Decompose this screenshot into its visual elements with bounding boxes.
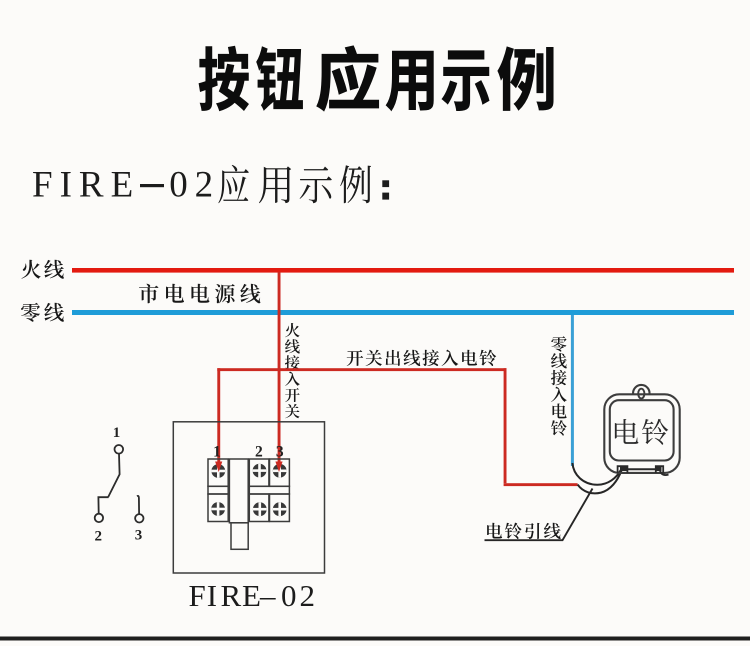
svg-text:123: 123 bbox=[94, 425, 142, 544]
svg-text:02: 02 bbox=[169, 165, 220, 206]
svg-text:FIRE–02: FIRE–02 bbox=[189, 578, 316, 613]
svg-text:FIRE: FIRE bbox=[32, 165, 140, 206]
svg-text:123: 123 bbox=[213, 443, 284, 460]
